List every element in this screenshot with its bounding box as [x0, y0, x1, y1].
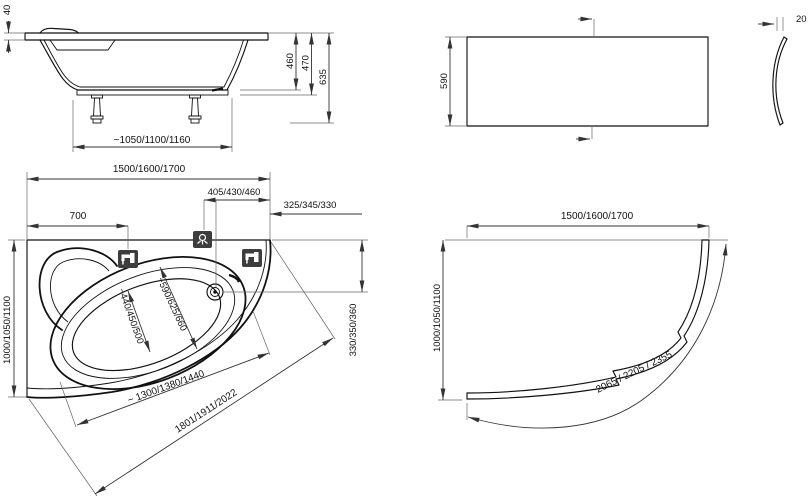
headrest-profile: [40, 28, 79, 33]
basin-rings: [32, 231, 265, 414]
adjustable-foot-right: [189, 95, 201, 123]
front-panel-outline: [467, 37, 708, 126]
faucet-icon-left: [118, 250, 138, 268]
seat-recess: [50, 40, 115, 50]
front-panel-view: 590 20: [439, 14, 807, 139]
dim-plan-overall-width: 1000/1050/1100: [2, 296, 13, 364]
support-rail: [77, 90, 228, 95]
dim-rim-thickness: 40: [2, 5, 13, 16]
dim-front-edge-length: 1801/1911/2022: [173, 387, 239, 435]
plan-view: 1500/1600/1700 405/430/460 325/345/330 7…: [2, 164, 368, 496]
dim-arc-length: 2065 / 2205 / 2355: [594, 349, 674, 396]
adjustable-foot-left: [91, 95, 103, 123]
dim-corner-offset: 325/345/330: [284, 200, 337, 211]
dim-inner-width-head: ~440/450/500: [115, 287, 145, 346]
dim-inner-width-foot: ~590/625/660: [154, 275, 189, 333]
dim-corner-panel-length: 1500/1600/1700: [561, 211, 634, 222]
dim-corner-panel-width: 1000/1050/1100: [432, 284, 443, 352]
dim-mixer-to-corner: 405/430/460: [208, 187, 261, 198]
dim-total-height: 635: [318, 69, 329, 85]
dim-panel-thickness: 20: [796, 14, 807, 25]
headrest-lobe-outer: [40, 248, 117, 330]
side-view: 40 460 470 635 ~1050/1100/1160: [2, 5, 334, 152]
tub-rim-profile: [25, 33, 268, 40]
corner-panel-view: 2065 / 2205 / 2355 1500/1600/1700 1000/1…: [432, 211, 728, 428]
headrest-lobe-inner: [50, 259, 109, 322]
mixer-icon: [193, 231, 212, 248]
dim-drain-to-wall: 330/350/360: [348, 304, 359, 357]
drain-icon: [207, 284, 223, 300]
corner-panel-band: [467, 240, 709, 399]
tub-body-inner-line: [44, 40, 244, 87]
dim-panel-height: 590: [439, 73, 450, 89]
dim-plan-overall-length: 1500/1600/1700: [113, 164, 186, 175]
dim-feet-span: ~1050/1100/1160: [114, 135, 191, 146]
panel-section-profile: [773, 37, 787, 125]
dim-tap-offset: 700: [70, 211, 87, 222]
arc-dimension-line: [468, 244, 726, 428]
dim-depth: 460: [285, 53, 296, 69]
dim-rim-height: 470: [301, 55, 312, 71]
bathtub-dimension-drawing: 40 460 470 635 ~1050/1100/1160 590: [0, 0, 812, 500]
technical-drawing-canvas: 40 460 470 635 ~1050/1100/1160 590: [0, 0, 812, 500]
faucet-icon-right: [242, 249, 262, 267]
